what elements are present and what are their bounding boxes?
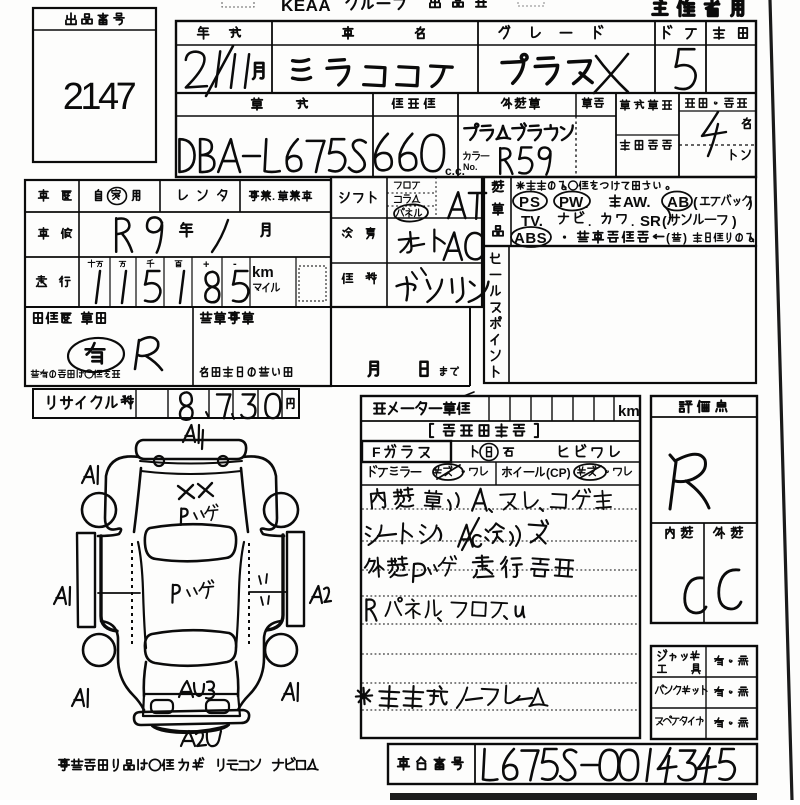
svg-text:・: ・ (558, 230, 571, 245)
svg-text:.: . (588, 215, 591, 229)
svg-text:.: . (272, 191, 275, 203)
svg-text:KEAA: KEAA (281, 0, 331, 15)
svg-text:(: ( (666, 231, 670, 245)
svg-text:.: . (585, 197, 588, 211)
svg-text:km: km (252, 264, 274, 281)
svg-text:+: + (203, 259, 209, 271)
svg-text:(: ( (693, 194, 698, 210)
svg-text:AW.: AW. (623, 194, 651, 211)
svg-text:(CP): (CP) (546, 466, 571, 480)
svg-text:c.c.: c.c. (445, 164, 465, 178)
svg-text:(: ( (662, 213, 667, 229)
svg-text:): ) (683, 231, 687, 245)
svg-text:2147: 2147 (63, 76, 136, 118)
svg-text:): ) (732, 213, 737, 229)
svg-text:.: . (631, 215, 634, 229)
svg-text:-: - (233, 258, 237, 270)
svg-text:SR: SR (640, 213, 661, 230)
svg-text:F: F (372, 444, 381, 460)
svg-text:No.: No. (463, 162, 478, 172)
svg-text:): ) (748, 194, 753, 210)
svg-text:PS: PS (519, 194, 541, 211)
svg-text:km: km (618, 403, 640, 420)
